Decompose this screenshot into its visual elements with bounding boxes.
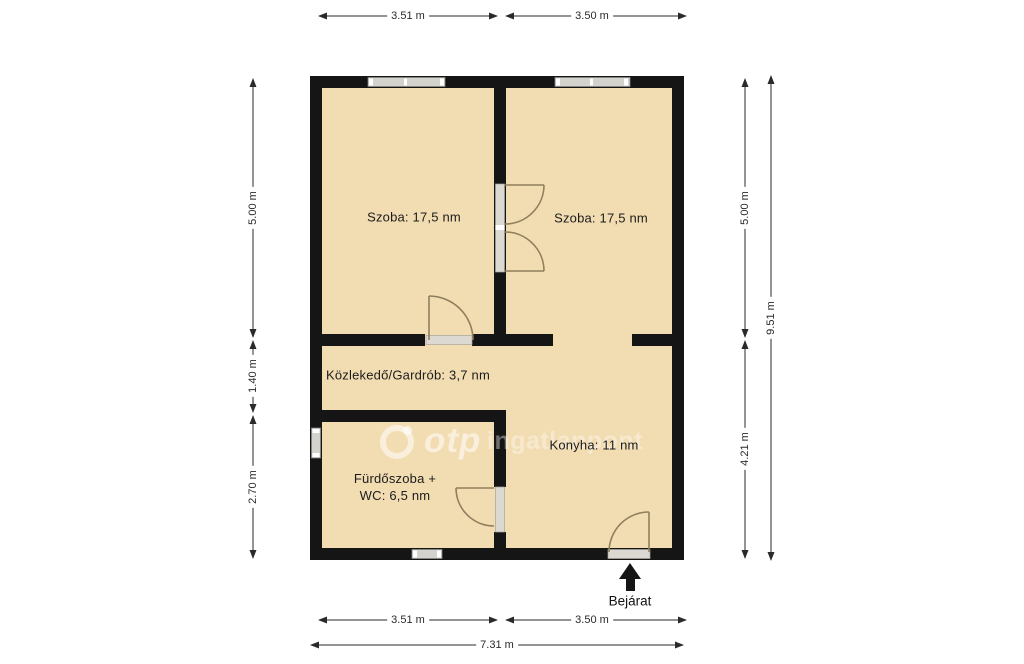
wall-mid-center (472, 334, 553, 346)
wall-bath-top (322, 410, 506, 422)
room-label-furdoszoba-line1: Fürdőszoba + (354, 470, 436, 487)
wall-left (310, 76, 322, 560)
dim-label-bottom-total: 7.31 m (476, 639, 518, 651)
room-label-szoba-left: Szoba: 17,5 nm (367, 210, 461, 225)
threshold-szoba-left-door (426, 336, 472, 345)
dim-label-bottom-right: 3.50 m (571, 614, 613, 626)
dim-label-bottom-left: 3.51 m (387, 614, 429, 626)
dim-label-right-lower: 4.21 m (739, 428, 751, 470)
room-label-furdoszoba: Fürdőszoba + WC: 6,5 nm (354, 470, 436, 504)
threshold-bathroom-door (496, 487, 505, 532)
dim-label-top-right: 3.50 m (571, 10, 613, 22)
threshold-entrance-door (608, 550, 650, 559)
room-label-konyha: Konyha: 11 nm (549, 438, 638, 453)
window-szoba-right (555, 78, 630, 87)
dim-label-left-middle: 1.40 m (247, 355, 259, 397)
dim-label-left-upper: 5.00 m (247, 187, 259, 229)
window-bathroom-bottom (412, 550, 442, 559)
wall-mid-right (632, 334, 672, 346)
entrance-label: Bejárat (609, 594, 652, 609)
entrance-arrow-icon (619, 563, 641, 591)
room-label-kozlekedo: Közlekedő/Gardrób: 3,7 nm (326, 368, 490, 383)
room-label-furdoszoba-line2: WC: 6,5 nm (354, 487, 436, 504)
wall-mid-left (322, 334, 425, 346)
window-szoba-left (368, 78, 445, 87)
dim-label-top-left: 3.51 m (387, 10, 429, 22)
window-bathroom-left (312, 428, 321, 458)
wall-bath-right-upper (494, 410, 506, 487)
wall-right (672, 76, 684, 560)
dim-label-right-upper: 5.00 m (739, 187, 751, 229)
dim-label-right-total: 9.51 m (765, 297, 777, 339)
floorplan-page: otp ingatlanpont Szoba: 17,5 nm Szoba: 1… (0, 0, 1024, 664)
dim-label-left-lower: 2.70 m (247, 466, 259, 508)
room-label-szoba-right: Szoba: 17,5 nm (554, 211, 648, 226)
double-door-mid-cap (496, 225, 505, 230)
floorplan-drawing (0, 0, 1024, 664)
wall-bath-right-lower (494, 532, 506, 548)
